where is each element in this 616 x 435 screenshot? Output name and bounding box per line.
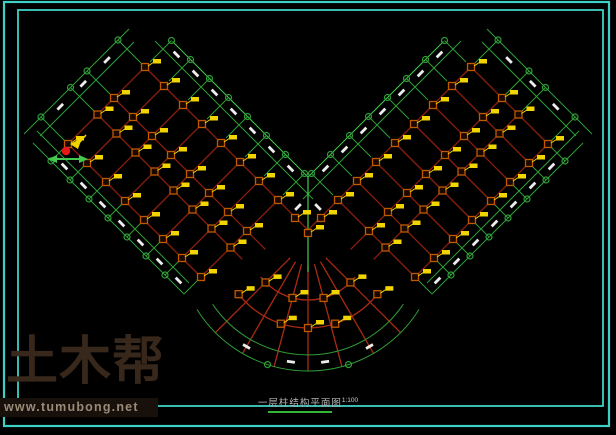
curved-bay-fan bbox=[197, 258, 419, 371]
title-underline bbox=[268, 411, 332, 413]
cad-viewport: 土木帮 www.tumubong.net 一层柱结构平面图1:100 bbox=[0, 0, 616, 435]
benchmark-symbol bbox=[48, 135, 88, 163]
watermark-logo: 土木帮 bbox=[6, 334, 165, 391]
drawing-scale: 1:100 bbox=[342, 397, 358, 404]
drawing-title-text: 一层柱结构平面图 bbox=[258, 398, 342, 409]
drawing-title: 一层柱结构平面图1:100 bbox=[0, 395, 616, 413]
left-wing-grid bbox=[24, 29, 313, 294]
right-wing-grid bbox=[303, 29, 592, 294]
